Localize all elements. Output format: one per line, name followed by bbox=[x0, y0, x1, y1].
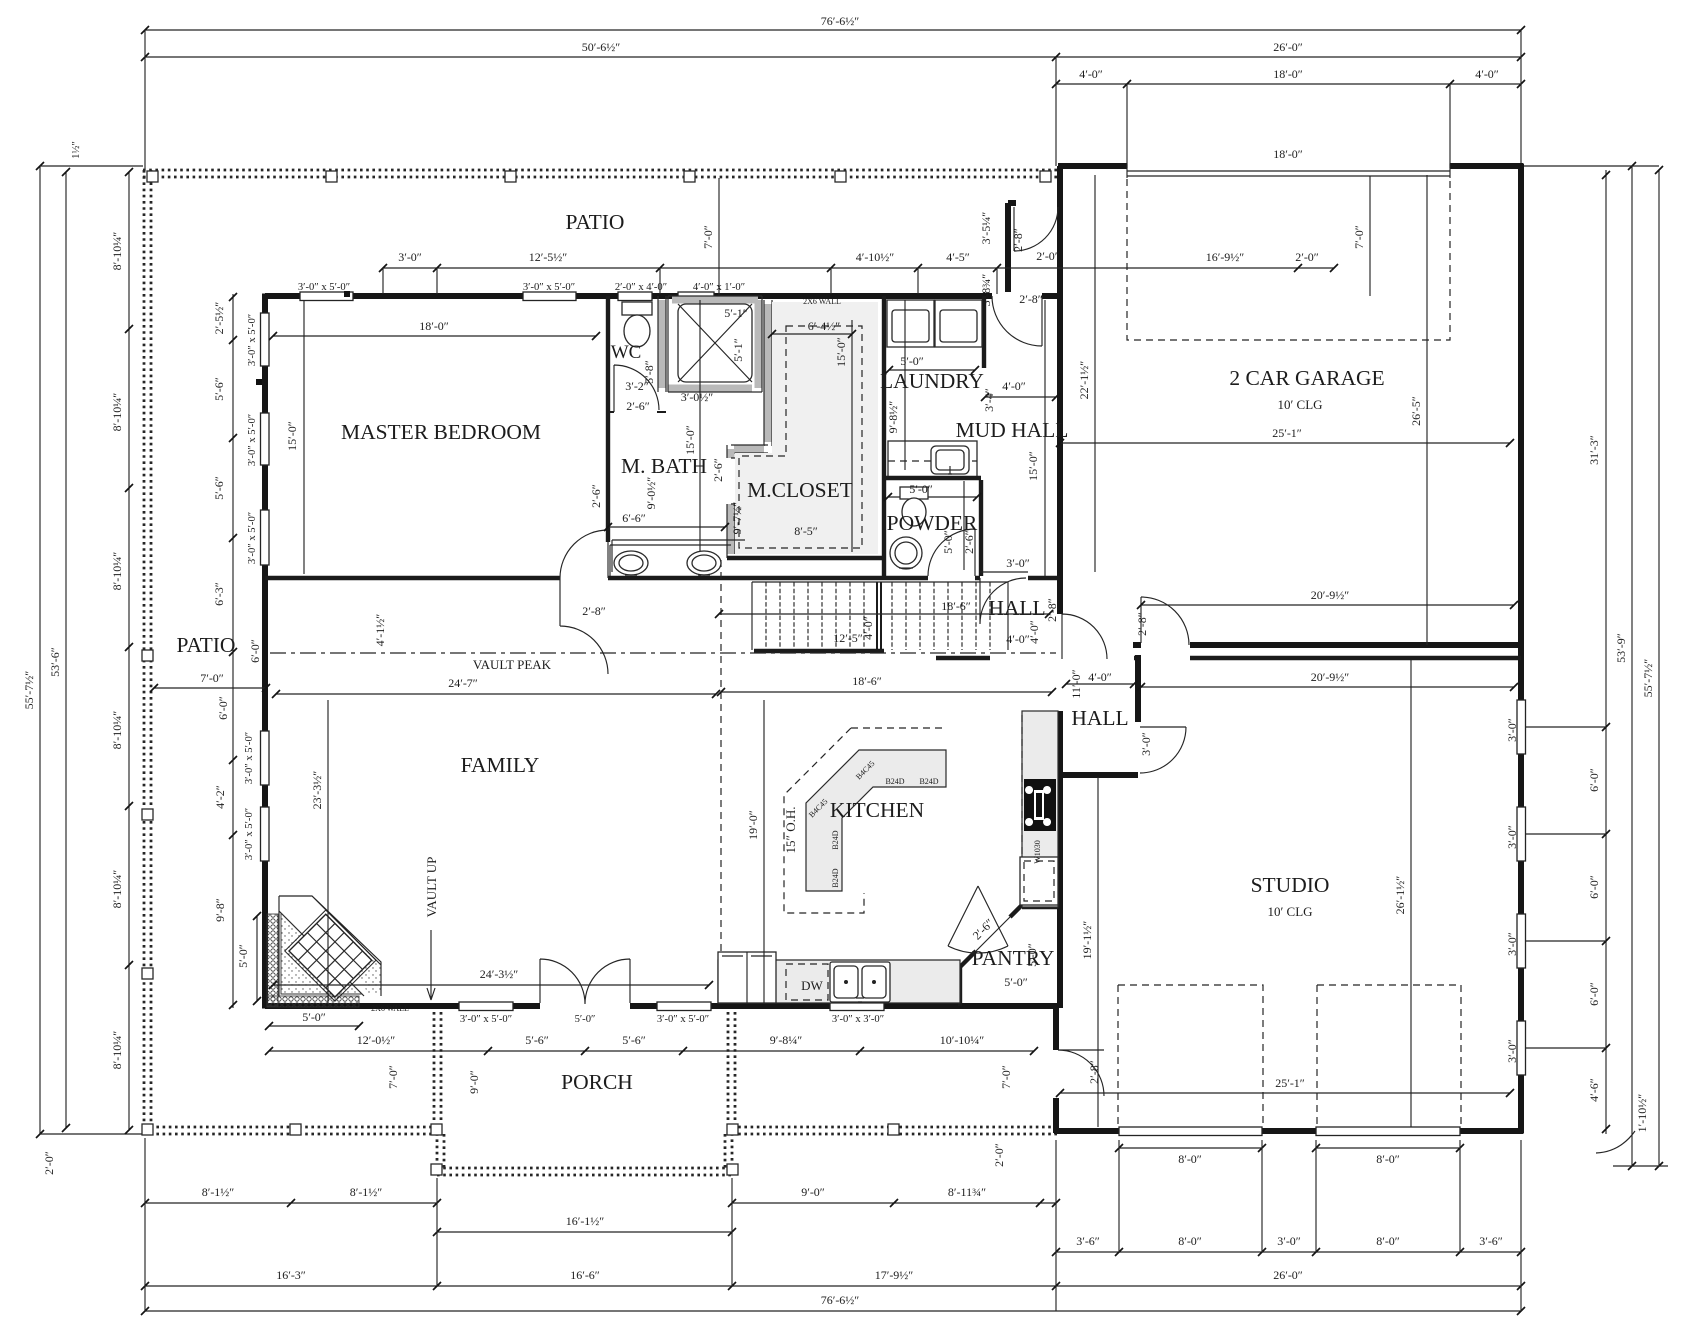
svg-text:8′-0″: 8′-0″ bbox=[1178, 1152, 1202, 1166]
svg-text:3′-4″: 3′-4″ bbox=[982, 388, 996, 412]
svg-text:15′-0″: 15′-0″ bbox=[834, 337, 848, 367]
svg-text:4′-0″: 4′-0″ bbox=[1079, 67, 1103, 81]
svg-text:4′-6″: 4′-6″ bbox=[1587, 1078, 1601, 1102]
svg-text:2′-8″: 2′-8″ bbox=[1087, 1060, 1101, 1084]
svg-text:4′-0″ x 1′-0″: 4′-0″ x 1′-0″ bbox=[693, 282, 745, 293]
svg-text:20′-9½″: 20′-9½″ bbox=[1311, 670, 1350, 684]
svg-text:3′-6″: 3′-6″ bbox=[1479, 1234, 1503, 1248]
svg-text:5′-6″: 5′-6″ bbox=[525, 1033, 549, 1047]
svg-text:9′-7½″: 9′-7½″ bbox=[730, 502, 744, 535]
svg-text:15′-0″: 15′-0″ bbox=[683, 425, 697, 455]
svg-text:76′-6½″: 76′-6½″ bbox=[821, 14, 860, 28]
svg-text:KITCHEN: KITCHEN bbox=[830, 798, 925, 822]
svg-text:8′-1½″: 8′-1½″ bbox=[350, 1185, 383, 1199]
svg-text:5′-0″: 5′-0″ bbox=[900, 354, 924, 368]
svg-text:2X6 WALL: 2X6 WALL bbox=[803, 297, 841, 306]
svg-text:2′-8″: 2′-8″ bbox=[1045, 598, 1059, 622]
svg-text:2′-0″: 2′-0″ bbox=[42, 1151, 56, 1175]
svg-text:26′-0″: 26′-0″ bbox=[1273, 40, 1303, 54]
svg-text:4′-0″: 4′-0″ bbox=[1002, 379, 1026, 393]
svg-text:4′-10½″: 4′-10½″ bbox=[856, 250, 895, 264]
svg-text:3′-0″ x 3′-0″: 3′-0″ x 3′-0″ bbox=[832, 1014, 884, 1025]
svg-text:5′-0″: 5′-0″ bbox=[575, 1014, 596, 1025]
svg-text:5′-6″: 5′-6″ bbox=[622, 1033, 646, 1047]
svg-text:5′-1″: 5′-1″ bbox=[731, 338, 745, 362]
svg-text:53′-6″: 53′-6″ bbox=[48, 647, 62, 677]
svg-text:3′-5¼″: 3′-5¼″ bbox=[979, 212, 993, 245]
svg-text:10′-10¼″: 10′-10¼″ bbox=[940, 1033, 985, 1047]
svg-text:3′-0″ x 5′-0″: 3′-0″ x 5′-0″ bbox=[298, 282, 350, 293]
svg-text:8′-0″: 8′-0″ bbox=[1376, 1152, 1400, 1166]
svg-text:5′-0″: 5′-0″ bbox=[236, 944, 250, 968]
svg-text:4′-0″: 4′-0″ bbox=[1088, 670, 1112, 684]
svg-text:7′-0″: 7′-0″ bbox=[386, 1065, 400, 1089]
svg-text:9′-0½″: 9′-0½″ bbox=[644, 477, 658, 510]
svg-text:6′-0″: 6′-0″ bbox=[216, 696, 230, 720]
svg-text:MASTER BEDROOM: MASTER BEDROOM bbox=[341, 420, 541, 444]
svg-text:25′-1″: 25′-1″ bbox=[1275, 1076, 1305, 1090]
svg-text:16′-6″: 16′-6″ bbox=[570, 1268, 600, 1282]
svg-text:76′-6½″: 76′-6½″ bbox=[821, 1293, 860, 1307]
svg-text:16′-3″: 16′-3″ bbox=[276, 1268, 306, 1282]
svg-text:17′-9½″: 17′-9½″ bbox=[875, 1268, 914, 1282]
svg-text:23′-3½″: 23′-3½″ bbox=[310, 771, 324, 810]
svg-text:W1030: W1030 bbox=[1033, 840, 1042, 864]
svg-text:HALL: HALL bbox=[988, 596, 1045, 620]
svg-text:4′-0″: 4′-0″ bbox=[861, 616, 875, 640]
svg-text:2′-6″: 2′-6″ bbox=[711, 458, 725, 482]
svg-text:7′-0″: 7′-0″ bbox=[999, 1065, 1013, 1089]
svg-text:PORCH: PORCH bbox=[561, 1070, 633, 1094]
svg-text:FAMILY: FAMILY bbox=[461, 753, 540, 777]
svg-text:1½″: 1½″ bbox=[71, 141, 82, 159]
svg-text:STUDIO: STUDIO bbox=[1251, 873, 1330, 897]
svg-text:6′-3″: 6′-3″ bbox=[212, 582, 226, 606]
svg-text:26′-1½″: 26′-1½″ bbox=[1393, 876, 1407, 915]
svg-text:50′-6½″: 50′-6½″ bbox=[582, 40, 621, 54]
svg-text:12′-0½″: 12′-0½″ bbox=[357, 1033, 396, 1047]
svg-text:2′-8″: 2′-8″ bbox=[1135, 612, 1149, 636]
svg-text:18′-0″: 18′-0″ bbox=[1273, 147, 1303, 161]
svg-text:19′-1½″: 19′-1½″ bbox=[1080, 921, 1094, 960]
svg-text:B24D: B24D bbox=[885, 777, 904, 786]
svg-text:15′-0″: 15′-0″ bbox=[285, 421, 299, 451]
svg-text:2′-8″: 2′-8″ bbox=[1019, 292, 1043, 306]
svg-text:8′-10¼″: 8′-10¼″ bbox=[110, 393, 124, 432]
svg-text:18′-6″: 18′-6″ bbox=[852, 674, 882, 688]
svg-text:5′-0″: 5′-0″ bbox=[1025, 943, 1039, 967]
svg-text:3′-0″ x 5′-0″: 3′-0″ x 5′-0″ bbox=[657, 1014, 709, 1025]
svg-text:4′-0″: 4′-0″ bbox=[1475, 67, 1499, 81]
svg-text:8′-10¼″: 8′-10¼″ bbox=[110, 711, 124, 750]
svg-text:2′-6″: 2′-6″ bbox=[626, 399, 650, 413]
svg-text:3′-0″: 3′-0″ bbox=[398, 250, 422, 264]
svg-text:5′-6″: 5′-6″ bbox=[212, 476, 226, 500]
svg-text:1′-10½″: 1′-10½″ bbox=[1635, 1094, 1649, 1133]
svg-text:DW: DW bbox=[801, 978, 823, 993]
svg-text:5′-0″: 5′-0″ bbox=[909, 482, 933, 496]
svg-text:3′-0″ x 5′-0″: 3′-0″ x 5′-0″ bbox=[244, 808, 255, 860]
svg-text:12′-5½″: 12′-5½″ bbox=[529, 250, 568, 264]
svg-text:WC: WC bbox=[611, 342, 642, 363]
svg-text:55′-7½″: 55′-7½″ bbox=[1641, 659, 1655, 698]
svg-text:3′-0″ x 5′-0″: 3′-0″ x 5′-0″ bbox=[523, 282, 575, 293]
svg-text:3′-0″: 3′-0″ bbox=[1139, 732, 1153, 756]
svg-text:2 CAR GARAGE: 2 CAR GARAGE bbox=[1229, 366, 1384, 390]
svg-text:6′-6″: 6′-6″ bbox=[622, 511, 646, 525]
svg-text:8′-1½″: 8′-1½″ bbox=[202, 1185, 235, 1199]
svg-text:2′-8″: 2′-8″ bbox=[1011, 228, 1025, 252]
svg-text:2′-8″: 2′-8″ bbox=[582, 604, 606, 618]
svg-text:7′-0″: 7′-0″ bbox=[701, 225, 715, 249]
svg-text:6′-0″: 6′-0″ bbox=[1587, 875, 1601, 899]
svg-text:2′-0″: 2′-0″ bbox=[992, 1143, 1006, 1167]
svg-text:2′-0″: 2′-0″ bbox=[1295, 250, 1319, 264]
svg-text:3′-6″: 3′-6″ bbox=[1076, 1234, 1100, 1248]
svg-text:5′-8″: 5′-8″ bbox=[642, 360, 656, 384]
svg-text:4′-0″: 4′-0″ bbox=[1027, 620, 1041, 644]
svg-text:3′-0″ x 5′-0″: 3′-0″ x 5′-0″ bbox=[244, 732, 255, 784]
svg-text:4′-2″: 4′-2″ bbox=[213, 785, 227, 809]
svg-text:8′-10¼″: 8′-10¼″ bbox=[110, 232, 124, 271]
svg-text:18′-6″: 18′-6″ bbox=[941, 599, 971, 613]
svg-text:MUD HALL: MUD HALL bbox=[956, 418, 1069, 442]
svg-text:55′-7½″: 55′-7½″ bbox=[22, 671, 36, 710]
svg-text:10′ CLG: 10′ CLG bbox=[1267, 904, 1312, 919]
svg-text:8′-10¼″: 8′-10¼″ bbox=[110, 552, 124, 591]
svg-text:8′-0″: 8′-0″ bbox=[1376, 1234, 1400, 1248]
svg-text:22′-1½″: 22′-1½″ bbox=[1077, 361, 1091, 400]
svg-text:53′-9″: 53′-9″ bbox=[1614, 633, 1628, 663]
svg-text:25′-1″: 25′-1″ bbox=[1272, 426, 1302, 440]
svg-text:B24D: B24D bbox=[831, 830, 840, 849]
svg-text:2′-6″: 2′-6″ bbox=[589, 484, 603, 508]
svg-text:PATIO: PATIO bbox=[566, 210, 625, 234]
svg-text:3′-0″ x 5′-0″: 3′-0″ x 5′-0″ bbox=[247, 414, 258, 466]
svg-text:18′-0″: 18′-0″ bbox=[419, 319, 449, 333]
svg-text:HALL: HALL bbox=[1071, 706, 1128, 730]
svg-text:5′-0″: 5′-0″ bbox=[1004, 975, 1028, 989]
svg-text:3′-0″: 3′-0″ bbox=[1505, 825, 1519, 849]
svg-text:6′-0″: 6′-0″ bbox=[1587, 768, 1601, 792]
svg-text:31′-3″: 31′-3″ bbox=[1587, 435, 1601, 465]
svg-text:2X6 WALL: 2X6 WALL bbox=[371, 1004, 409, 1013]
svg-text:9′-8½″: 9′-8½″ bbox=[886, 401, 900, 434]
svg-text:5′-0″: 5′-0″ bbox=[941, 530, 955, 554]
svg-text:12′-5″: 12′-5″ bbox=[833, 631, 863, 645]
svg-text:M.CLOSET: M.CLOSET bbox=[747, 478, 853, 502]
svg-text:2′-6″: 2′-6″ bbox=[962, 530, 976, 554]
svg-text:3′-8¾″: 3′-8¾″ bbox=[979, 274, 993, 307]
svg-text:7′-0″: 7′-0″ bbox=[1352, 225, 1366, 249]
svg-text:4′-1½″: 4′-1½″ bbox=[373, 614, 387, 647]
svg-text:8′-10¼″: 8′-10¼″ bbox=[110, 870, 124, 909]
svg-text:8′-5″: 8′-5″ bbox=[794, 524, 818, 538]
svg-text:2′-5½″: 2′-5½″ bbox=[212, 302, 226, 335]
svg-text:3′-0″: 3′-0″ bbox=[1505, 1039, 1519, 1063]
svg-text:2′-0″: 2′-0″ bbox=[1036, 249, 1060, 263]
svg-text:B24D: B24D bbox=[919, 777, 938, 786]
svg-text:3′-0″: 3′-0″ bbox=[1505, 718, 1519, 742]
svg-text:9′-0″: 9′-0″ bbox=[801, 1185, 825, 1199]
svg-text:16′-1½″: 16′-1½″ bbox=[566, 1214, 605, 1228]
svg-text:15′-0″: 15′-0″ bbox=[1026, 451, 1040, 481]
svg-text:3′-0″ x 5′-0″: 3′-0″ x 5′-0″ bbox=[247, 314, 258, 366]
svg-text:3′-0″ x 5′-0″: 3′-0″ x 5′-0″ bbox=[460, 1014, 512, 1025]
svg-text:5′-6″: 5′-6″ bbox=[212, 377, 226, 401]
svg-text:19′-0″: 19′-0″ bbox=[746, 810, 760, 840]
svg-text:B24D: B24D bbox=[831, 868, 840, 887]
svg-text:5′-1″: 5′-1″ bbox=[724, 306, 748, 320]
svg-text:3′-0″ x 5′-0″: 3′-0″ x 5′-0″ bbox=[247, 512, 258, 564]
svg-text:7′-0″: 7′-0″ bbox=[200, 671, 224, 685]
svg-text:3′-0″: 3′-0″ bbox=[1505, 932, 1519, 956]
svg-text:VAULT UP: VAULT UP bbox=[424, 857, 439, 918]
svg-text:26′-5″: 26′-5″ bbox=[1409, 396, 1423, 426]
svg-text:2′-0″ x 4′-0″: 2′-0″ x 4′-0″ bbox=[615, 282, 667, 293]
svg-text:6′-0″: 6′-0″ bbox=[248, 639, 262, 663]
svg-text:24′-3½″: 24′-3½″ bbox=[480, 967, 519, 981]
svg-text:M. BATH: M. BATH bbox=[621, 454, 707, 478]
svg-text:20′-9½″: 20′-9½″ bbox=[1311, 588, 1350, 602]
svg-text:15″ O.H.: 15″ O.H. bbox=[783, 807, 798, 854]
svg-text:10′ CLG: 10′ CLG bbox=[1277, 397, 1322, 412]
svg-text:6′-0″: 6′-0″ bbox=[1587, 982, 1601, 1006]
svg-text:8′-11¾″: 8′-11¾″ bbox=[948, 1185, 986, 1199]
svg-text:5′-0″: 5′-0″ bbox=[302, 1010, 326, 1024]
svg-text:9′-8¼″: 9′-8¼″ bbox=[770, 1033, 803, 1047]
svg-text:9′-8″: 9′-8″ bbox=[213, 898, 227, 922]
svg-text:3′-0″: 3′-0″ bbox=[1277, 1234, 1301, 1248]
svg-text:3′-0½″: 3′-0½″ bbox=[681, 390, 714, 404]
svg-text:PATIO: PATIO bbox=[177, 633, 236, 657]
svg-text:16′-9½″: 16′-9½″ bbox=[1206, 250, 1245, 264]
svg-text:LAUNDRY: LAUNDRY bbox=[880, 369, 984, 393]
svg-text:3′-0″: 3′-0″ bbox=[1006, 556, 1030, 570]
svg-text:4′-5″: 4′-5″ bbox=[946, 250, 970, 264]
svg-text:8′-10¼″: 8′-10¼″ bbox=[110, 1031, 124, 1070]
svg-text:6′-4½″: 6′-4½″ bbox=[808, 319, 841, 333]
svg-text:PANTRY: PANTRY bbox=[972, 946, 1055, 970]
svg-text:26′-0″: 26′-0″ bbox=[1273, 1268, 1303, 1282]
svg-text:9′-0″: 9′-0″ bbox=[467, 1070, 481, 1094]
svg-text:8′-0″: 8′-0″ bbox=[1178, 1234, 1202, 1248]
svg-text:VAULT PEAK: VAULT PEAK bbox=[473, 657, 552, 672]
svg-text:24′-7″: 24′-7″ bbox=[448, 676, 478, 690]
svg-text:18′-0″: 18′-0″ bbox=[1273, 67, 1303, 81]
